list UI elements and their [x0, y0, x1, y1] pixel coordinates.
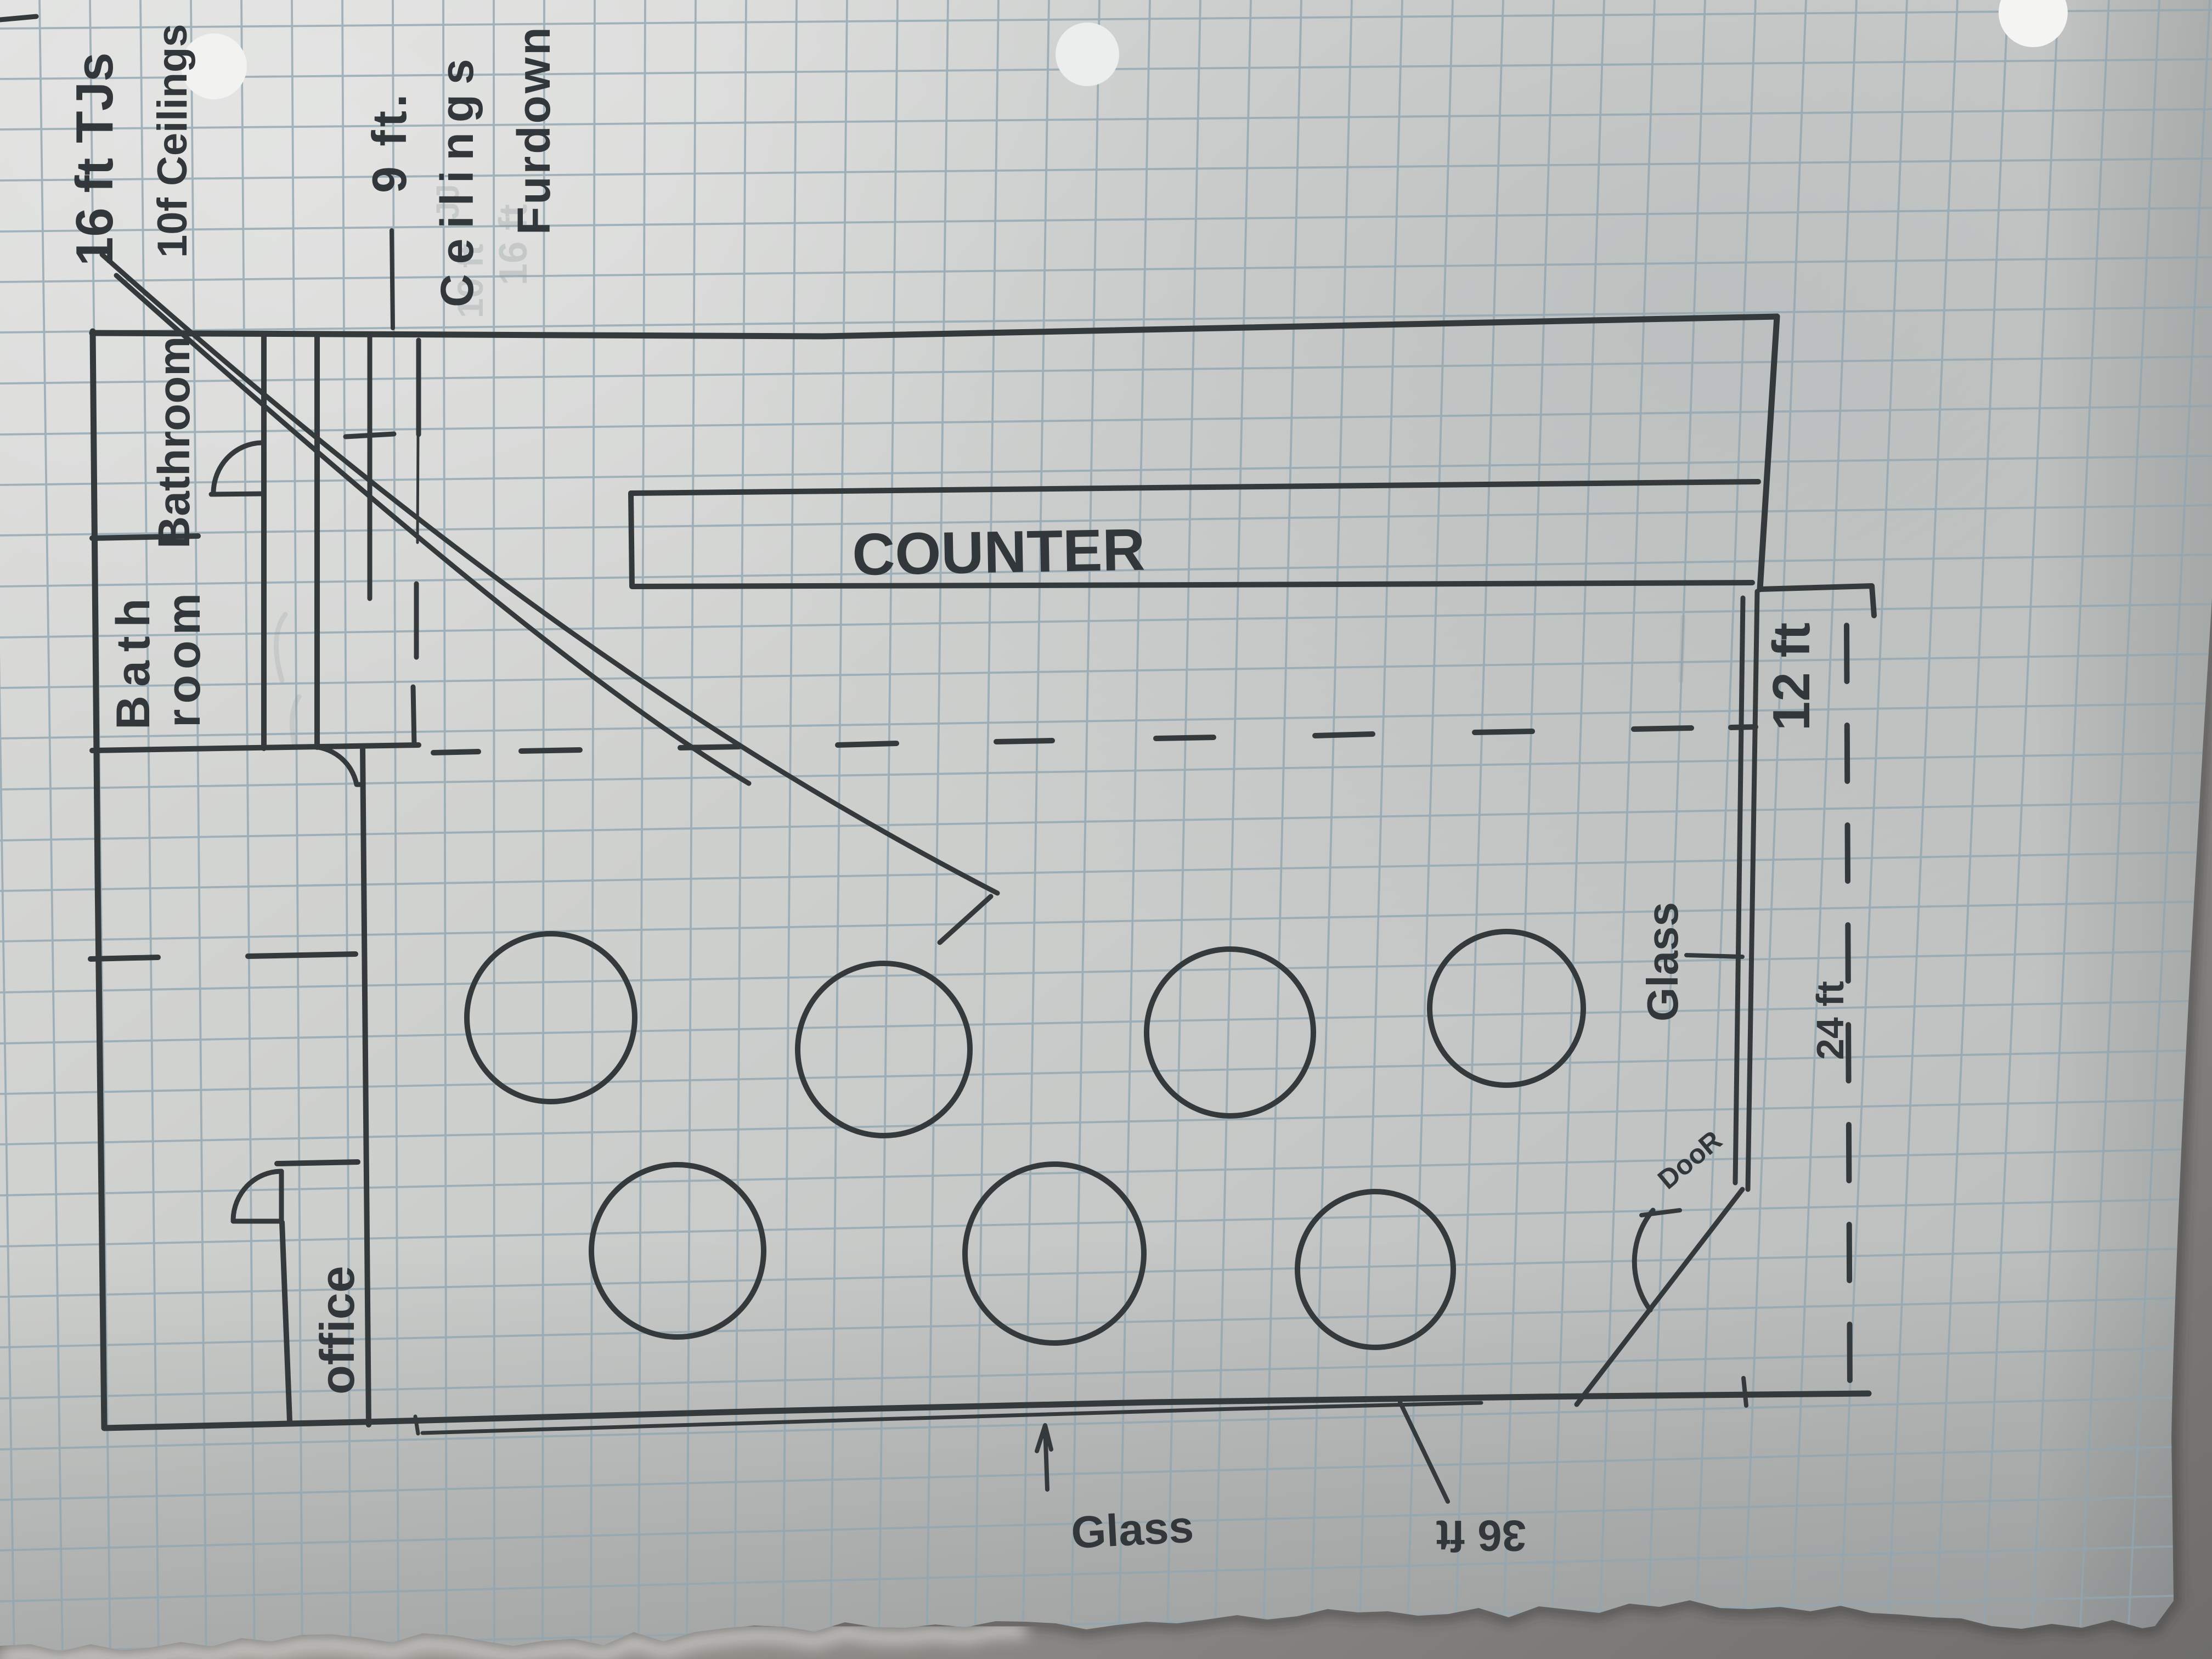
- svg-text:Bath: Bath: [107, 590, 160, 730]
- svg-text:COUNTER: COUNTER: [851, 516, 1145, 588]
- svg-text:Glass: Glass: [1070, 1502, 1195, 1558]
- svg-text:office: office: [310, 1266, 364, 1395]
- svg-text:16 ft TJs: 16 ft TJs: [65, 53, 124, 266]
- svg-text:9 ft.: 9 ft.: [362, 91, 416, 193]
- svg-text:24 ft: 24 ft: [1809, 981, 1852, 1060]
- svg-text:Glass: Glass: [1638, 902, 1687, 1022]
- svg-text:10f Ceilings: 10f Ceilings: [149, 24, 196, 258]
- svg-text:Bathroom: Bathroom: [149, 336, 199, 549]
- svg-text:room: room: [157, 588, 210, 727]
- svg-text:12 ft: 12 ft: [1762, 623, 1821, 731]
- svg-text:Furdown: Furdown: [508, 25, 560, 235]
- svg-text:Ceilings: Ceilings: [431, 49, 483, 307]
- svg-text:36 ft: 36 ft: [1436, 1511, 1527, 1560]
